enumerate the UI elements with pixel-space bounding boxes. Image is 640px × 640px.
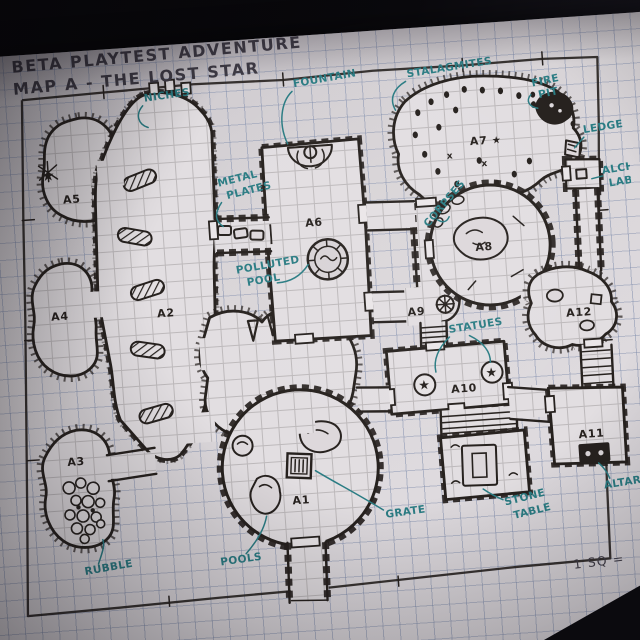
room-label-a8: A8 [475,240,493,254]
pentagram-statue-icon-2: ★ [481,361,503,383]
room-alchemy-lab [561,157,601,191]
room-label-a5: A5 [63,192,81,206]
grate-icon [287,453,312,478]
photo-of-hand-drawn-dungeon-map: ★ A5 [0,0,640,640]
label-fountain: FOUNTAIN [292,67,357,90]
label-pools: POOLS [220,551,263,569]
passage-a5-a2 [96,159,124,187]
polluted-pool-icon [306,238,349,281]
label-grate: GRATE [385,503,427,521]
room-label-a12: A12 [566,305,593,320]
svg-text:★: ★ [418,378,431,394]
stone-table-icon [460,443,498,487]
star-mark: ★ [492,135,502,147]
scale-note: 1 SQ = [573,551,626,572]
door-a12-south [584,338,603,347]
room-label-a1: A1 [292,493,310,507]
cave-a12: A12 [525,263,619,349]
leader-fountain [280,91,296,144]
room-label-a3: A3 [67,455,85,469]
label-alchemy-lab-1: ALCHEMY [601,156,640,177]
dungeon-map-drawing: ★ A5 [0,0,640,640]
graph-paper-sheet: ★ A5 [0,6,640,640]
label-alchemy-lab-2: LAB [608,174,634,190]
door-a2-east [209,221,218,240]
room-label-a4: A4 [51,310,69,324]
corridor-ledge-south [574,188,604,271]
x-mark: x [481,159,488,169]
lab-table-icon [576,169,587,179]
door-a8-west [425,240,434,259]
door-lab [562,166,571,181]
label-ledge: LEDGE [582,118,624,136]
room-label-a6: A6 [305,216,323,230]
passage-a4-a2 [85,291,107,318]
room-label-a2: A2 [157,306,175,320]
door-a1-south [291,537,320,548]
room-a6: A6 [256,139,377,346]
passage-cave-a2-tail [174,412,216,445]
room-a11: A11 [541,337,628,467]
corridor-a10-west-stub [357,385,391,413]
room-label-a7: A7 [469,134,487,148]
room-label-a9: A9 [407,305,425,319]
room-a10: ★ ★ A10 [382,337,514,418]
x-mark-2: x [447,151,454,161]
cave-a3: A3 [40,428,118,550]
door-a11-west [545,396,555,413]
corridor-a1-south [285,536,329,603]
label-rubble: RUBBLE [84,558,134,578]
svg-text:★: ★ [485,365,498,381]
room-label-a10: A10 [451,381,478,396]
cave-a4: A4 [28,262,100,379]
passage-cave-a2 [199,337,223,370]
door-a7-south [416,198,437,207]
door-a6-south [295,334,314,344]
pentagram-statue-icon: ★ [414,374,436,396]
altar-icon [578,442,610,463]
passage-cave-a1 [274,399,316,436]
room-label-a11: A11 [578,426,605,441]
